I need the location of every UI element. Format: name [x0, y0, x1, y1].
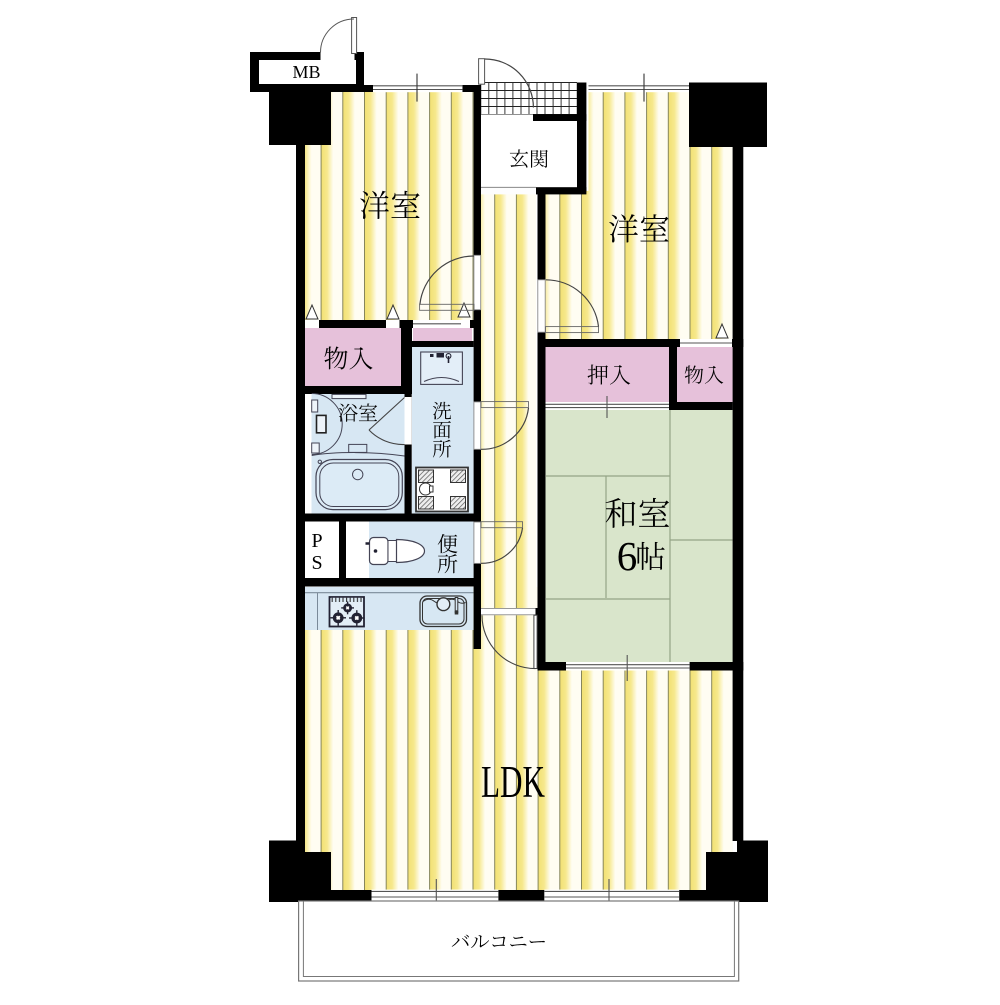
svg-text:LDK: LDK	[481, 757, 545, 807]
svg-text:MB: MB	[292, 62, 320, 82]
svg-text:S: S	[311, 552, 322, 574]
svg-text:6: 6	[617, 533, 638, 579]
svg-text:P: P	[311, 530, 322, 552]
